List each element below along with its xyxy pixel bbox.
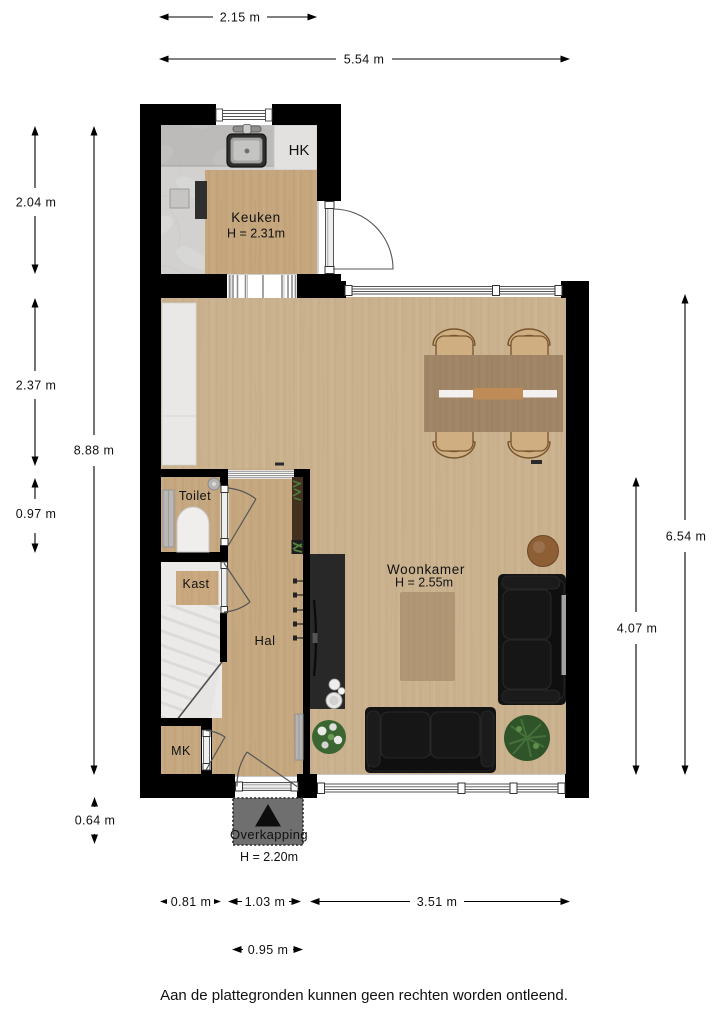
svg-text:Hal: Hal	[254, 633, 275, 648]
svg-text:5.54 m: 5.54 m	[344, 53, 385, 67]
svg-text:0.64 m: 0.64 m	[75, 814, 116, 828]
svg-text:0.95 m: 0.95 m	[248, 943, 289, 957]
svg-text:H = 2.55m: H = 2.55m	[395, 576, 453, 590]
svg-text:MK: MK	[171, 744, 191, 758]
svg-text:Aan de plattegronden kunnen ge: Aan de plattegronden kunnen geen rechten…	[160, 987, 568, 1004]
svg-text:2.04 m: 2.04 m	[16, 196, 57, 210]
svg-text:0.81 m: 0.81 m	[171, 895, 212, 909]
svg-text:Toilet: Toilet	[179, 489, 211, 503]
svg-text:Keuken: Keuken	[231, 210, 280, 225]
svg-text:HK: HK	[289, 142, 310, 159]
svg-text:0.97 m: 0.97 m	[16, 507, 57, 521]
svg-text:Overkapping: Overkapping	[230, 827, 308, 842]
svg-text:H = 2.20m: H = 2.20m	[240, 850, 298, 864]
svg-text:1.03 m: 1.03 m	[245, 895, 286, 909]
svg-text:2.37 m: 2.37 m	[16, 379, 57, 393]
svg-text:H = 2.31m: H = 2.31m	[227, 227, 285, 241]
svg-text:Kast: Kast	[182, 577, 209, 591]
svg-text:6.54 m: 6.54 m	[666, 530, 707, 544]
svg-text:3.51 m: 3.51 m	[417, 895, 458, 909]
svg-text:2.15 m: 2.15 m	[220, 11, 261, 25]
svg-text:4.07 m: 4.07 m	[617, 622, 658, 636]
svg-text:8.88 m: 8.88 m	[74, 444, 115, 458]
